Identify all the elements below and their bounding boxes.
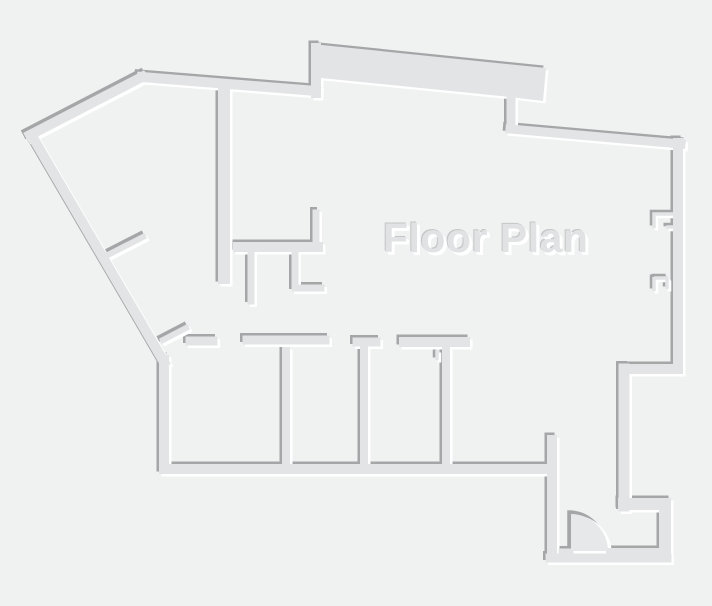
floor-plan-title: Floor Plan [383, 215, 588, 262]
floor-plan-svg [0, 0, 712, 606]
door-swing-icon [571, 514, 608, 551]
wall-segment [32, 136, 164, 362]
balcony-block [312, 44, 546, 101]
wall-fill-layer [30, 44, 681, 558]
wall-segment [102, 237, 143, 258]
wall-segment [30, 77, 142, 135]
floor-plan: Floor Plan [0, 0, 712, 606]
